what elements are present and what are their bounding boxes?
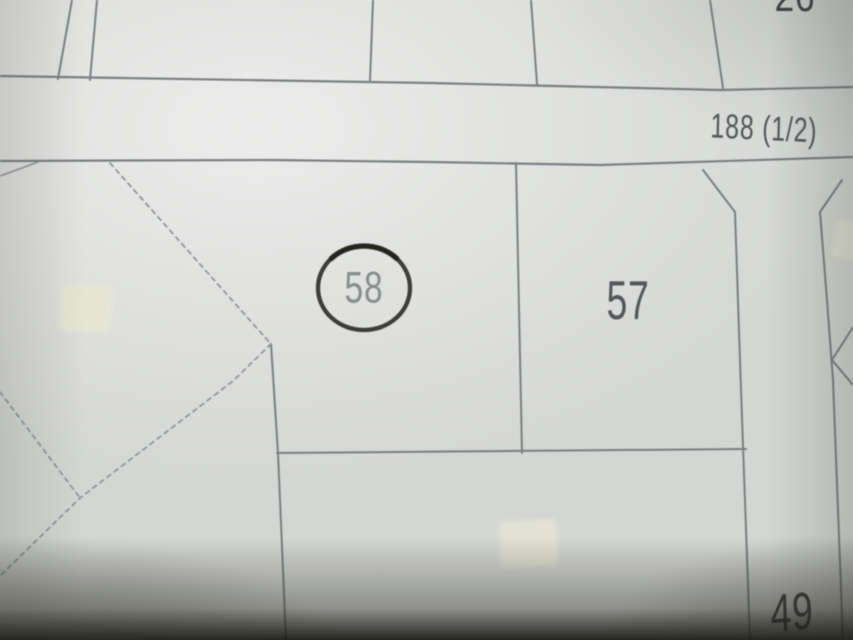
bottom-parcel-left-line bbox=[271, 344, 286, 640]
upper-parcel-line-2 bbox=[90, 0, 97, 80]
parcel-49-label: 49 bbox=[769, 584, 814, 640]
parcel-57-label: 57 bbox=[606, 274, 649, 329]
road-bottom-line bbox=[0, 157, 853, 165]
dashed-boundary-3 bbox=[0, 392, 80, 498]
mid-horizontal-line bbox=[277, 449, 746, 453]
top-left-corner-line bbox=[0, 162, 38, 176]
upper-parcel-line-4 bbox=[531, 0, 537, 84]
road-number-label: 188 (1/2) bbox=[710, 108, 818, 148]
pale-sticker-left bbox=[59, 284, 113, 333]
dashed-boundary-1 bbox=[110, 163, 271, 344]
parcel-57-right-line bbox=[703, 170, 750, 640]
right-edge-parcel-corner bbox=[832, 327, 853, 385]
parcel-58-marker-overlap bbox=[332, 246, 397, 258]
parcel-boundary-lines bbox=[0, 0, 853, 640]
upper-parcel-line-1 bbox=[58, 0, 72, 79]
cadastral-map-photo: 188 (1/2) 58 57 49 26 bbox=[0, 0, 853, 640]
parcel-58-label: 58 bbox=[345, 266, 384, 310]
partial-parcel-label-top-edge: 26 bbox=[775, 0, 816, 19]
road-top-line bbox=[0, 76, 853, 90]
divider-58-57 bbox=[516, 163, 522, 453]
upper-parcel-line-5 bbox=[710, 0, 723, 88]
pale-sticker-bottom bbox=[499, 519, 558, 569]
upper-parcel-line-3 bbox=[370, 0, 373, 81]
dashed-boundary-2 bbox=[0, 344, 271, 576]
map-sheet: 188 (1/2) 58 57 49 26 bbox=[0, 0, 853, 640]
